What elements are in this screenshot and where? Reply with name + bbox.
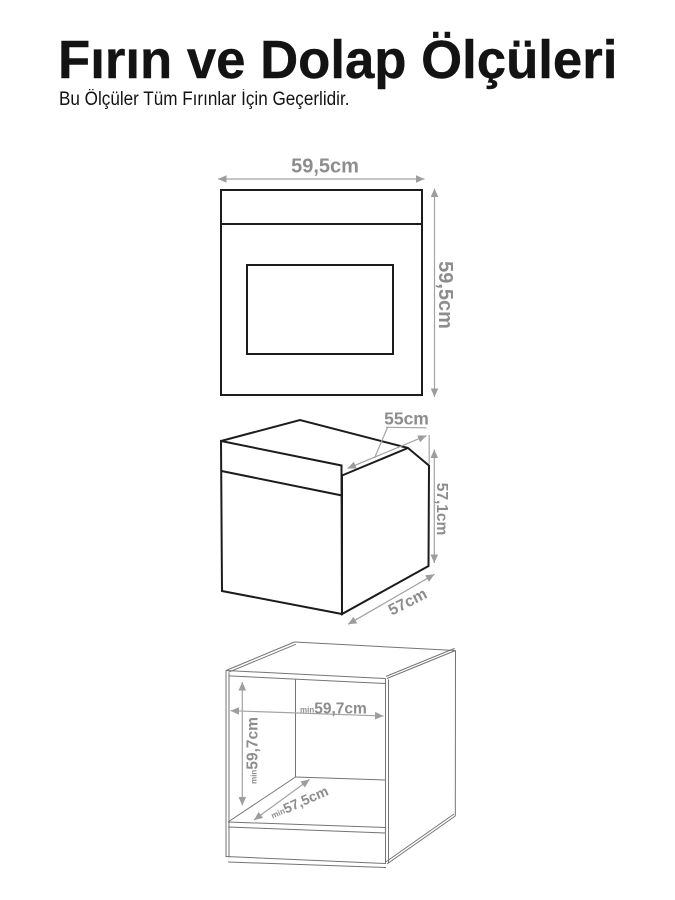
svg-text:min59,7cm: min59,7cm bbox=[300, 701, 367, 718]
svg-text:57cm: 57cm bbox=[386, 586, 430, 620]
svg-text:59,5cm: 59,5cm bbox=[434, 261, 456, 329]
svg-text:min59,7cm: min59,7cm bbox=[245, 717, 262, 784]
svg-text:59,5cm: 59,5cm bbox=[291, 156, 359, 178]
svg-text:57,1cm: 57,1cm bbox=[433, 483, 450, 536]
svg-text:55cm: 55cm bbox=[384, 409, 429, 429]
